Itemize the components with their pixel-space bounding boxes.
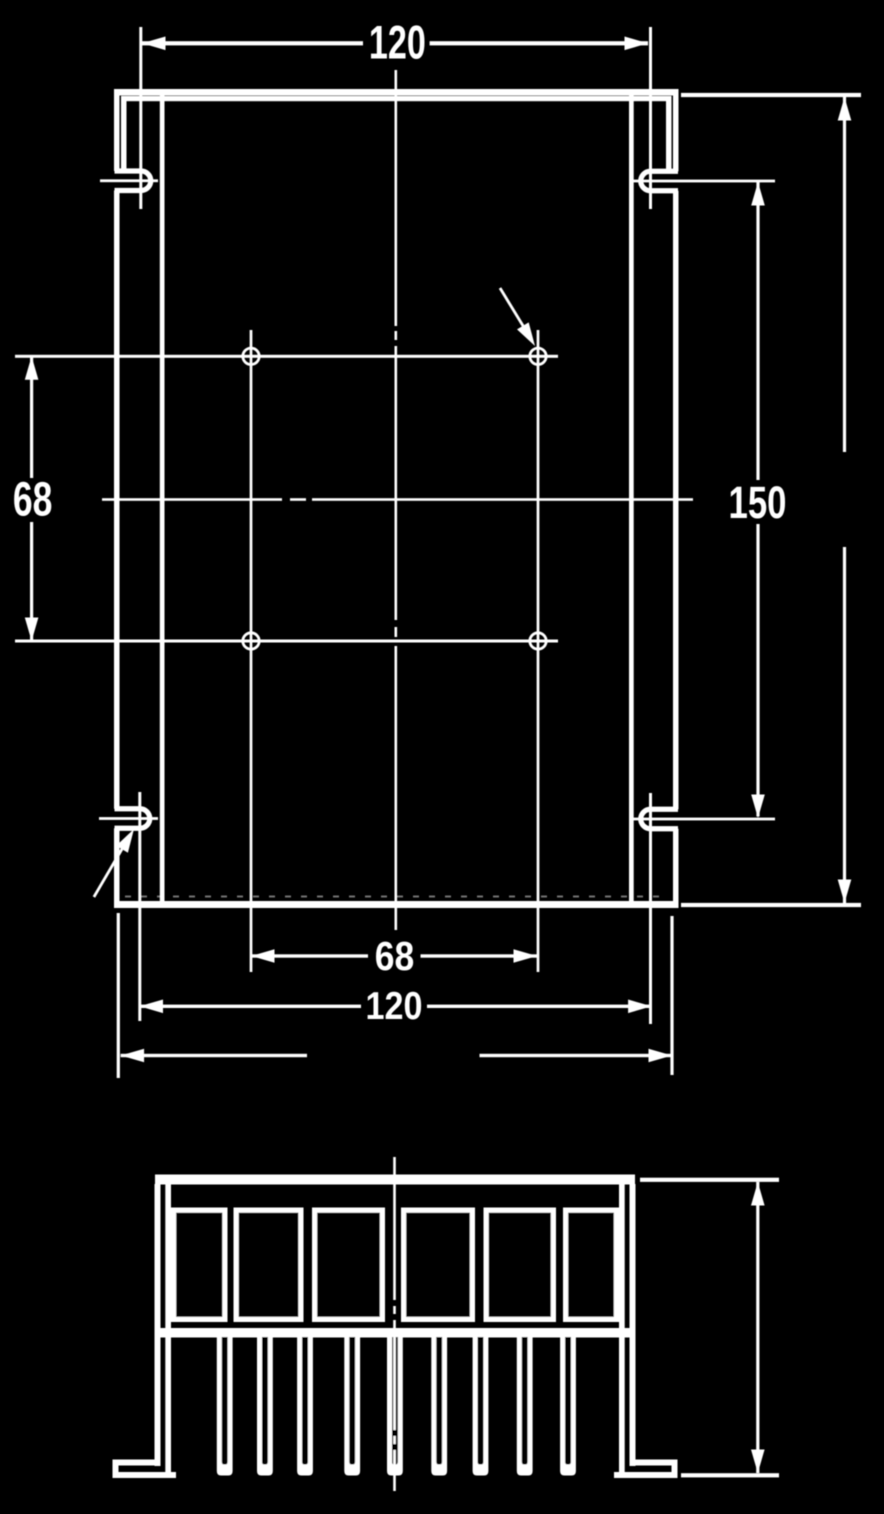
svg-text:120: 120 bbox=[366, 985, 423, 1028]
svg-text:150: 150 bbox=[729, 477, 787, 528]
svg-text:120: 120 bbox=[369, 16, 426, 69]
svg-text:68: 68 bbox=[13, 474, 53, 527]
svg-text:68: 68 bbox=[375, 933, 415, 979]
